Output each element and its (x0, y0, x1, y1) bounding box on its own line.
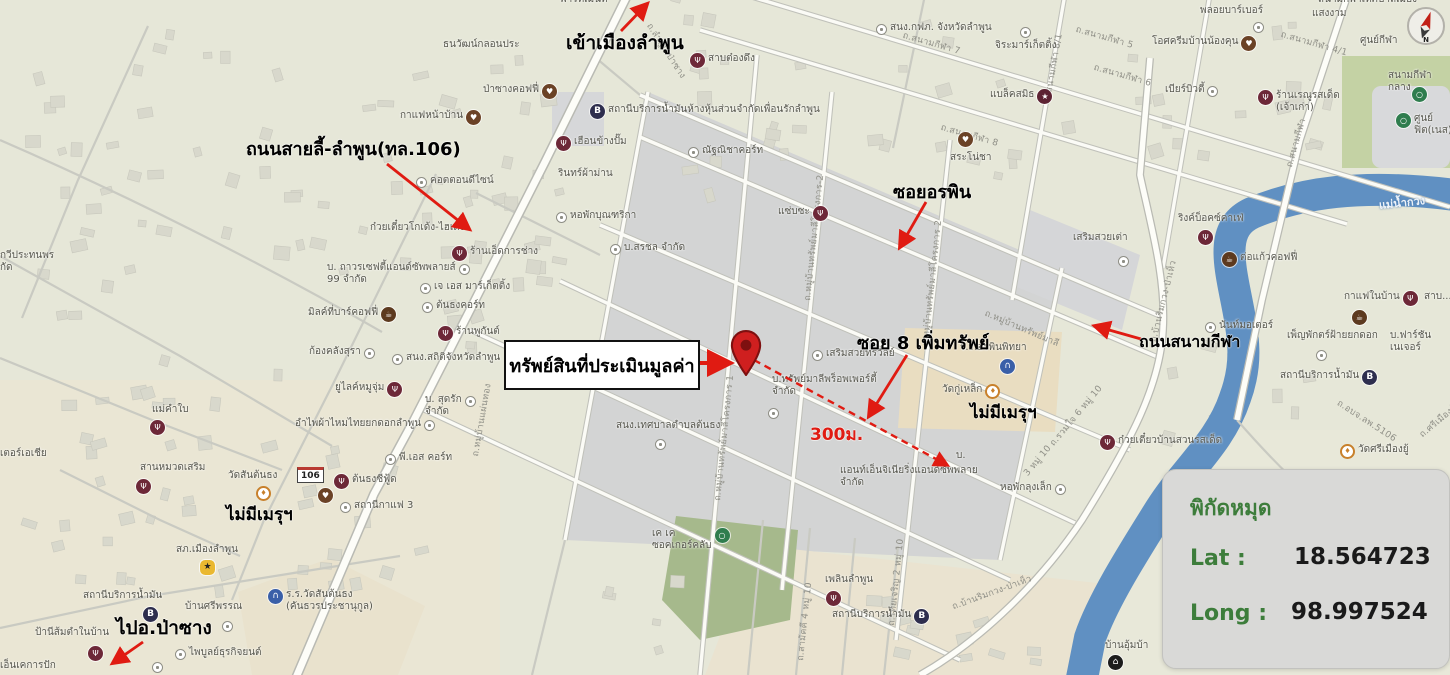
poi-label: ณัฐณิชาคอร์ท (688, 145, 763, 158)
poi-label: ∩ร.ร.วัดสันต้นธง (คันธวรประชานุกูล) (268, 589, 373, 613)
generic-icon (392, 354, 403, 365)
poi-text: ก๋วยเตี๋ยวบ้านสวนรสเด็ด (1118, 435, 1222, 447)
poi-label: ♦วัดศรีเมืองยู้ (1340, 444, 1409, 459)
restaurant-icon: Ψ (1403, 291, 1418, 306)
poi-label: Bสถานีบริการน้ำมันห้างหุ้นส่วนจำกัดเพื่อ… (590, 104, 820, 119)
school-icon: ∩ (1000, 359, 1015, 374)
restaurant-icon: Ψ (438, 326, 453, 341)
poi-text: ต้นธงซีฟู้ด (352, 474, 397, 486)
poi-label: หอพักลุงเล็ก (1000, 482, 1066, 495)
generic-icon (424, 420, 435, 431)
generic-icon (1253, 20, 1264, 33)
poi-label: ศูนย์กีฬา (1360, 35, 1398, 47)
poi-label: โอศครีมบ้านน้องคุน♥ (1152, 36, 1256, 51)
generic-icon (422, 302, 433, 313)
generic-icon (610, 244, 621, 255)
poi-label: สาบ... (1424, 291, 1450, 303)
sport-icon: ○ (1412, 87, 1427, 102)
poi-label: ป้านีส้มตำในบ้าน (35, 627, 109, 639)
poi-text: ศูนย์ฟิต(เนส) (1414, 113, 1450, 137)
poi-label: ก้องคลังสุรา (309, 346, 375, 359)
generic-icon (1253, 22, 1264, 33)
poi-text: สถานีบริการน้ำมัน (832, 609, 911, 621)
coordinates-panel: พิกัดหมุด Lat : 18.564723 Long : 98.9975… (1162, 469, 1450, 669)
poi-text: สระโน่ชา (950, 152, 991, 164)
poi-label: ก๋วยเตี๋ยวโกเด้ง-ไฮเด้ง (370, 222, 465, 234)
restaurant-icon: Ψ (826, 591, 841, 606)
lodging-icon: ⌂ (1108, 655, 1123, 670)
poi-label: สนามกีฬาเทศบาลเมือง (1318, 0, 1417, 6)
restaurant-icon: Ψ (150, 420, 165, 435)
poi-label: อำไพผ้าไหมไทยยกดอกลำพูน (295, 418, 435, 431)
property-callout-label: ทรัพย์สินที่ประเมินมูลค่า (509, 351, 694, 380)
annotation-label: ถนนสายลี้-ลำพูน(ทล.106) (246, 134, 461, 163)
generic-icon (222, 621, 233, 632)
generic-icon (152, 662, 163, 673)
poi-label: ยูไลค์หมูจุ่มΨ (335, 382, 402, 397)
generic-icon (222, 619, 233, 632)
restaurant-icon: Ψ (334, 474, 349, 489)
poi-label: Ψก๋วยเตี๋ยวบ้านสวนรสเด็ด (1100, 435, 1222, 450)
route-106-shield: 106 (297, 467, 324, 483)
poi-text: สนง.กฟภ. จังหวัดลำพูน (890, 22, 992, 34)
cafe-icon: ♥ (958, 132, 973, 147)
poi-text: หอพักบุณฑริกา (570, 210, 636, 222)
poi-text: ริงค์บ็อคซ์คาเฟ่ (1178, 213, 1244, 225)
map-canvas[interactable]: ทรัพย์สินที่ประเมินมูลค่า 106 พิกัดหมุด … (0, 0, 1450, 675)
poi-text: รินทร์ผ้าม่าน (558, 168, 613, 180)
poi-label: สานหมวดเสริม (140, 462, 205, 474)
generic-icon (416, 177, 427, 188)
generic-icon (340, 502, 351, 513)
coordinates-title: พิกัดหมุด (1190, 492, 1272, 525)
poi-label: เอ็นเคการปัก (0, 660, 56, 672)
cafe-icon: ♥ (318, 488, 333, 503)
generic-icon (768, 406, 779, 419)
poi-label: ☕ต่อแก้วคอฟฟี่ (1222, 252, 1297, 267)
sport-icon: ○ (1396, 113, 1411, 128)
temple-icon: ♦ (1340, 444, 1355, 459)
poi-text: กาแฟหน้าบ้าน (400, 110, 463, 122)
coffee-icon: ☕ (1352, 310, 1367, 325)
poi-label: สนง.เทศบาลตำบลต้นธง (616, 420, 720, 432)
poi-text: แซ่บซะ (778, 206, 810, 218)
poi-text: บ.ฟาร์ชันเนเจอร์ (1390, 330, 1450, 354)
poi-text: ป่าซางคอฟฟี่ (483, 84, 539, 96)
poi-label: แสงงาม (1312, 8, 1347, 20)
poi-text: สถานีบริการน้ำมัน (83, 590, 162, 602)
poi-text: เพ็ญพักตร์ฝ้ายยกดอก (1287, 330, 1378, 342)
poi-text: เตอร์เอเชีย (0, 448, 47, 460)
poi-label: Ψร้านเอ็ดการช่าง (452, 246, 538, 261)
restaurant-icon: Ψ (136, 479, 151, 494)
poi-text: แอนท์เอ็นจิเนียริ่งแอนด์ซัพพลาย จำกัด (840, 465, 978, 489)
poi-text: เบียร์บิวตี้ (1165, 84, 1204, 96)
poi-label: Ψสาบต๋องดึง (690, 53, 755, 68)
restaurant-icon: Ψ (387, 382, 402, 397)
restaurant-icon: Ψ (813, 206, 828, 221)
poi-text: พาร์ทเมนท์ (560, 0, 608, 6)
police-icon: ★ (200, 560, 215, 575)
annotation-label: ไม่มีเมรุฯ (970, 399, 1037, 426)
cafe-icon: ♥ (466, 110, 481, 125)
annotation-label: 300ม. (810, 421, 863, 448)
fuel-icon: B (914, 609, 929, 624)
poi-text: พลอยบาร์เบอร์ (1200, 5, 1263, 17)
generic-icon (1020, 25, 1031, 38)
restaurant-icon: Ψ (1198, 230, 1213, 245)
generic-icon (175, 649, 186, 660)
poi-label: มิลค์ที่บาร์คอฟฟี่☕ (308, 307, 396, 322)
cafe-icon: ♥ (958, 132, 973, 147)
poi-label: วัดกู่เหล็ก♦ (942, 384, 1000, 399)
generic-icon (655, 439, 666, 450)
poi-text: กาแฟในบ้าน (1344, 291, 1400, 303)
poi-label: ริงค์บ็อคซ์คาเฟ่ (1178, 213, 1244, 225)
poi-label: ไพบูลย์ธุรกิจยนต์ (175, 647, 262, 660)
poi-text: สาบต๋องดึง (708, 53, 755, 65)
poi-text: ธนวัฒน์กลอนประ (443, 39, 520, 51)
poi-text: วัดสันต้นธง (228, 470, 277, 482)
poi-text: ร้านเรณูรสเด็ด (เจ้าเก่า) (1276, 90, 1340, 114)
poi-text: โอศครีมบ้านน้องคุน (1152, 36, 1238, 48)
poi-label: ต้นธงคอร์ท (422, 300, 485, 313)
poi-text: จิระมาร์เก็ตติ้ง (995, 40, 1057, 52)
poi-text: ณัฐณิชาคอร์ท (702, 145, 763, 157)
poi-label: กาแฟในบ้านΨ (1344, 291, 1418, 306)
generic-icon (768, 408, 779, 419)
annotation-label: ถนนสนามกีฬา (1139, 330, 1240, 355)
long-label: Long : (1190, 601, 1267, 626)
poi-label: แบล็คสมิธ★ (990, 89, 1052, 104)
poi-label: จิระมาร์เก็ตติ้ง (995, 40, 1057, 52)
restaurant-icon: Ψ (826, 591, 841, 606)
restaurant-icon: Ψ (136, 479, 151, 494)
poi-text: สนามกีฬาเทศบาลเมือง (1318, 0, 1417, 6)
poi-label: คอตตอนดีไซน์ (416, 175, 494, 188)
temple-icon: ♦ (256, 486, 271, 501)
cafe-icon: ♥ (1241, 36, 1256, 51)
poi-text: พี.เอส คอร์ท (399, 452, 452, 464)
annotation-label: ไปอ.ป่าซาง (116, 613, 212, 643)
poi-text: เฮือนข้างปั๊ม (574, 136, 627, 148)
poi-label: เตอร์เอเชีย (0, 448, 47, 460)
poi-label: Ψต้นธงซีฟู้ด (334, 474, 397, 489)
poi-text: แม่คำใบ (152, 404, 189, 416)
poi-text: เอ็นเคการปัก (0, 660, 56, 672)
svg-text:N: N (1423, 36, 1429, 44)
poi-label: สถานีบริการน้ำมันB (832, 609, 929, 624)
generic-icon (1020, 27, 1031, 38)
fuel-icon: B (590, 104, 605, 119)
poi-label: บ.สรชล จำกัด (610, 242, 685, 255)
poi-label: สระโน่ชา (950, 152, 991, 164)
poi-label: บ.ทรัพย์มาลีพร็อพเพอร์ตี้ จำกัด (772, 374, 877, 398)
poi-label: ○ศูนย์ฟิต(เนส) (1396, 113, 1450, 137)
school-icon: ∩ (268, 589, 283, 604)
property-location-pin (730, 330, 762, 376)
poi-label: รินทร์ผ้าม่าน (558, 168, 613, 180)
poi-label: บ. (956, 450, 966, 462)
generic-icon (1055, 484, 1066, 495)
poi-text: แสงงาม (1312, 8, 1347, 20)
poi-label: เจ เอส มาร์เก็ตติ้ง (420, 281, 510, 294)
poi-label: บ้านอุ้มบ้า (1105, 640, 1148, 652)
sport-icon: ○ (1412, 87, 1427, 102)
poi-text: บ้านอุ้มบ้า (1105, 640, 1148, 652)
lat-label: Lat : (1190, 546, 1246, 571)
compass-north-icon: N (1406, 6, 1446, 46)
poi-text: สถานีบริการน้ำมัน (1280, 370, 1359, 382)
poi-label: ป่าซางคอฟฟี่♥ (483, 84, 557, 99)
restaurant-icon: Ψ (88, 646, 103, 661)
poi-label: แอนท์เอ็นจิเนียริ่งแอนด์ซัพพลาย จำกัด (840, 465, 978, 489)
poi-text: กวีประทนพร กัด (0, 250, 54, 274)
temple-icon: ♦ (256, 486, 271, 501)
poi-text: ต้นธงคอร์ท (436, 300, 485, 312)
poi-text: สาบ... (1424, 291, 1450, 303)
sport-icon: ○ (715, 528, 730, 543)
poi-text: ป้านีส้มตำในบ้าน (35, 627, 109, 639)
poi-text: ไพบูลย์ธุรกิจยนต์ (189, 647, 262, 659)
coffee-icon: ☕ (1352, 310, 1367, 325)
poi-text: เค เค ซอคเกอร์คลับ (652, 528, 712, 552)
long-value: 98.997524 (1291, 599, 1428, 625)
generic-icon (364, 348, 375, 359)
generic-icon (1118, 254, 1129, 267)
poi-label: Ψร้านพูกันต์ (438, 326, 500, 341)
generic-icon (1207, 86, 1218, 97)
generic-icon (385, 454, 396, 465)
annotation-label: ไม่มีเมรุฯ (226, 501, 293, 528)
poi-text: คอตตอนดีไซน์ (430, 175, 494, 187)
poi-text: ก้องคลังสุรา (309, 346, 361, 358)
poi-text: หอพักลุงเล็ก (1000, 482, 1052, 494)
restaurant-icon: Ψ (690, 53, 705, 68)
coffee-icon: ☕ (381, 307, 396, 322)
poi-label: เพลินลำพูน (825, 574, 873, 586)
poi-label: Ψเฮือนข้างปั๊ม (556, 136, 627, 151)
poi-text: ศูนย์กีฬา (1360, 35, 1398, 47)
poi-text: ร้านเอ็ดการช่าง (470, 246, 538, 258)
poi-text: เสริมสวยเต่า (1073, 232, 1128, 244)
generic-icon (1316, 350, 1327, 361)
poi-text: สถานีกาแฟ 3 (354, 500, 413, 512)
poi-label: เค เค ซอคเกอร์คลับ○ (652, 528, 730, 552)
generic-icon (556, 212, 567, 223)
poi-label: สถานีกาแฟ 3 (340, 500, 413, 513)
restaurant-icon: Ψ (150, 420, 165, 435)
generic-icon (152, 660, 163, 673)
restaurant-icon: Ψ (452, 246, 467, 261)
generic-icon (1118, 256, 1129, 267)
poi-label: กาแฟหน้าบ้าน♥ (400, 110, 481, 125)
poi-text: อำไพผ้าไหมไทยยกดอกลำพูน (295, 418, 421, 430)
coffee-icon: ☕ (1222, 252, 1237, 267)
poi-text: วัดศรีเมืองยู้ (1358, 444, 1409, 456)
poi-text: ร.ร.วัดสันต้นธง (คันธวรประชานุกูล) (286, 589, 373, 613)
poi-text: เพลินลำพูน (825, 574, 873, 586)
poi-text: ร้านพูกันต์ (456, 326, 500, 338)
poi-text: สนง.เทศบาลตำบลต้นธง (616, 420, 720, 432)
restaurant-icon: Ψ (88, 646, 103, 661)
poi-label: สถานีบริการน้ำมัน (83, 590, 162, 602)
poi-label: พาร์ทเมนท์ (560, 0, 608, 6)
poi-text: ต่อแก้วคอฟฟี่ (1240, 252, 1297, 264)
poi-text: ยูไลค์หมูจุ่ม (335, 382, 384, 394)
poi-label: ธนวัฒน์กลอนประ (443, 39, 520, 51)
poi-text: บ. สุดรัก จำกัด (425, 394, 462, 418)
generic-icon (1316, 348, 1327, 361)
poi-label: สนง.กฟภ. จังหวัดลำพูน (876, 22, 992, 35)
poi-label: เสริมสวยเต่า (1073, 232, 1128, 244)
poi-label: กวีประทนพร กัด (0, 250, 54, 274)
cafe-icon: ♥ (318, 488, 333, 503)
poi-text: บ.สรชล จำกัด (624, 242, 685, 254)
shop-icon: ★ (1037, 89, 1052, 104)
generic-icon (655, 437, 666, 450)
poi-label: บ้านศรีพรรณ (185, 601, 242, 613)
poi-text: ก๋วยเตี๋ยวโกเด้ง-ไฮเด้ง (370, 222, 465, 234)
poi-text: บ. (956, 450, 966, 462)
poi-label: วัดสันต้นธง (228, 470, 277, 482)
generic-icon (420, 283, 431, 294)
poi-text: บ้านศรีพรรณ (185, 601, 242, 613)
property-callout-box: ทรัพย์สินที่ประเมินมูลค่า (504, 340, 700, 390)
poi-text: เจ เอส มาร์เก็ตติ้ง (434, 281, 510, 293)
lat-value: 18.564723 (1294, 544, 1431, 570)
temple-icon: ♦ (985, 384, 1000, 399)
restaurant-icon: Ψ (556, 136, 571, 151)
poi-label: สภ.เมืองลำพูน (176, 544, 238, 556)
poi-label: พี.เอส คอร์ท (385, 452, 452, 465)
fuel-icon: B (1362, 370, 1377, 385)
generic-icon (812, 350, 823, 361)
poi-label: บ. สุดรัก จำกัด (425, 394, 476, 418)
poi-text: สนง.สถิติจังหวัดลำพูน (406, 352, 500, 364)
annotation-label: เข้าเมืองลำพูน (566, 28, 684, 58)
poi-label: เพ็ญพักตร์ฝ้ายยกดอก (1287, 330, 1378, 342)
poi-label: เบียร์บิวตี้ (1165, 84, 1218, 97)
poi-label: Ψร้านเรณูรสเด็ด (เจ้าเก่า) (1258, 90, 1340, 114)
poi-label: แซ่บซะΨ (778, 206, 828, 221)
poi-label: สถานีบริการน้ำมันB (1280, 370, 1377, 385)
poi-text: มิลค์ที่บาร์คอฟฟี่ (308, 307, 378, 319)
restaurant-icon: Ψ (1100, 435, 1115, 450)
poi-text: วัดกู่เหล็ก (942, 384, 982, 396)
poi-label: พลอยบาร์เบอร์ (1200, 5, 1263, 17)
poi-text: แบล็คสมิธ (990, 89, 1034, 101)
generic-icon (876, 24, 887, 35)
generic-icon (688, 147, 699, 158)
generic-icon (459, 264, 470, 275)
restaurant-icon: Ψ (1198, 230, 1213, 245)
annotation-label: ซอย 8 เพิ่มทรัพย์ (857, 328, 989, 357)
lodging-icon: ⌂ (1108, 655, 1123, 670)
annotation-label: ซอยอรพิน (893, 177, 971, 206)
poi-text: บ.ทรัพย์มาลีพร็อพเพอร์ตี้ จำกัด (772, 374, 877, 398)
poi-label: บ.ฟาร์ชันเนเจอร์ (1390, 330, 1450, 354)
police-icon: ★ (200, 560, 215, 575)
poi-text: สานหมวดเสริม (140, 462, 205, 474)
poi-label: แม่คำใบ (152, 404, 189, 416)
poi-label: สนง.สถิติจังหวัดลำพูน (392, 352, 500, 365)
poi-text: สถานีบริการน้ำมันห้างหุ้นส่วนจำกัดเพื่อน… (608, 104, 820, 116)
cafe-icon: ♥ (542, 84, 557, 99)
poi-text: สภ.เมืองลำพูน (176, 544, 238, 556)
poi-label: หอพักบุณฑริกา (556, 210, 636, 223)
school-icon: ∩ (1000, 359, 1015, 374)
generic-icon (465, 396, 476, 407)
restaurant-icon: Ψ (1258, 90, 1273, 105)
